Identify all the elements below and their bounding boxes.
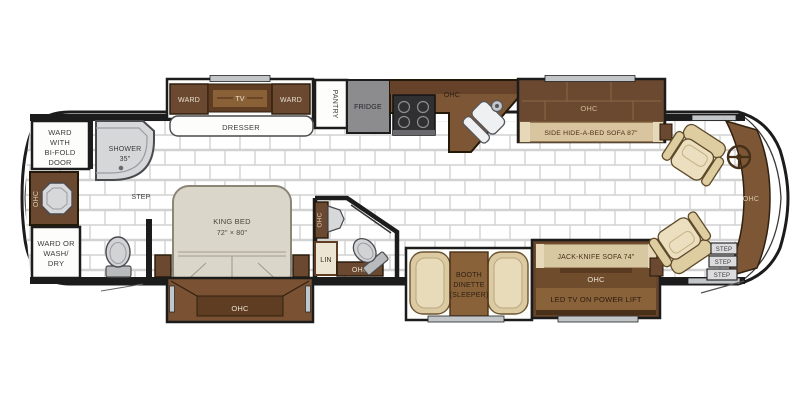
shower-size-label: 35" <box>120 156 131 163</box>
entry-steps: STEP STEP STEP <box>707 243 737 280</box>
front-window-bar <box>692 115 736 121</box>
mid-bath-ohc-vertical-label: OHC <box>317 212 324 227</box>
step-label-1: STEP <box>716 247 732 253</box>
fridge-label: FRIDGE <box>354 104 382 111</box>
shower-drain <box>119 166 124 171</box>
bedroom-area: WARD TV WARD DRESSER KING BED 72" × 80" … <box>155 76 313 323</box>
stove <box>393 95 435 135</box>
step-label-3: STEP <box>714 273 730 279</box>
rear-ohc-label: OHC <box>33 191 40 207</box>
hide-a-bed-label: SIDE HIDE-A-BED SOFA 87" <box>544 130 638 137</box>
pantry-label: PANTRY <box>331 90 338 119</box>
tv-lift-label: LED TV ON POWER LIFT <box>550 295 642 304</box>
ward-right-label: WARD <box>280 97 302 104</box>
ward-washdry-label-1: WARD OR <box>37 239 75 248</box>
king-bed-size-label: 72" × 80" <box>217 230 248 237</box>
side-table-top <box>660 124 672 140</box>
king-bed: KING BED 72" × 80" <box>173 186 291 290</box>
dinette-label-2: DINETTE <box>453 282 484 289</box>
sofa-ohc-label: OHC <box>580 104 598 113</box>
rear-step-label: STEP <box>131 194 150 201</box>
ward-washdry-label-2: WASH/ <box>43 249 69 258</box>
dinette-slide: BOOTH DINETTE (SLEEPER) <box>406 248 532 322</box>
sofa-slide: OHC SIDE HIDE-A-BED SOFA 87" <box>518 76 672 143</box>
dash-ohc-label: OHC <box>743 196 759 203</box>
jack-knife-slide-window <box>558 316 638 322</box>
step-label-2: STEP <box>715 260 731 266</box>
jack-knife-slide: JACK-KNIFE SOFA 74" OHC LED TV ON POWER … <box>532 240 663 322</box>
rear-vanity: OHC <box>30 172 78 225</box>
tv-cabinet: TV <box>208 84 272 112</box>
floorplan-svg: WARD WITH BI-FOLD DOOR SHOWER 35" OHC WA… <box>0 0 800 400</box>
nightstand-right <box>293 255 309 277</box>
dresser-label: DRESSER <box>222 123 260 132</box>
rv-floorplan: WARD WITH BI-FOLD DOOR SHOWER 35" OHC WA… <box>0 0 800 400</box>
ward-left-label: WARD <box>178 97 200 104</box>
dinette-slide-window <box>428 316 504 322</box>
ward-washdry-label-3: DRY <box>48 259 64 268</box>
sofa-slide-window <box>545 76 635 82</box>
jack-knife-label: JACK-KNIFE SOFA 74" <box>557 254 634 261</box>
ward-bifold-label-1: WARD <box>48 128 72 137</box>
ward-bifold-label-2: WITH <box>50 138 70 147</box>
tv-label: TV <box>235 96 244 103</box>
rear-toilet <box>106 237 131 277</box>
dinette-label-1: BOOTH <box>456 272 482 279</box>
shower-label: SHOWER <box>109 146 142 153</box>
linen-label: LIN <box>320 257 332 264</box>
king-bed-label: KING BED <box>213 217 251 226</box>
bed-ohc-label: OHC <box>231 304 249 313</box>
ward-bifold-label-3: BI-FOLD <box>45 148 76 157</box>
dinette-label-3: (SLEEPER) <box>450 292 489 299</box>
kitchen-ohc-label: OHC <box>444 92 460 99</box>
pantry-box <box>315 80 347 128</box>
bed-slide: OHC <box>167 278 313 322</box>
dresser-slide-window <box>210 76 270 82</box>
nightstand-left <box>155 255 171 277</box>
ward-bifold-label-4: DOOR <box>48 158 72 167</box>
jack-knife-ohc-label: OHC <box>587 275 605 284</box>
